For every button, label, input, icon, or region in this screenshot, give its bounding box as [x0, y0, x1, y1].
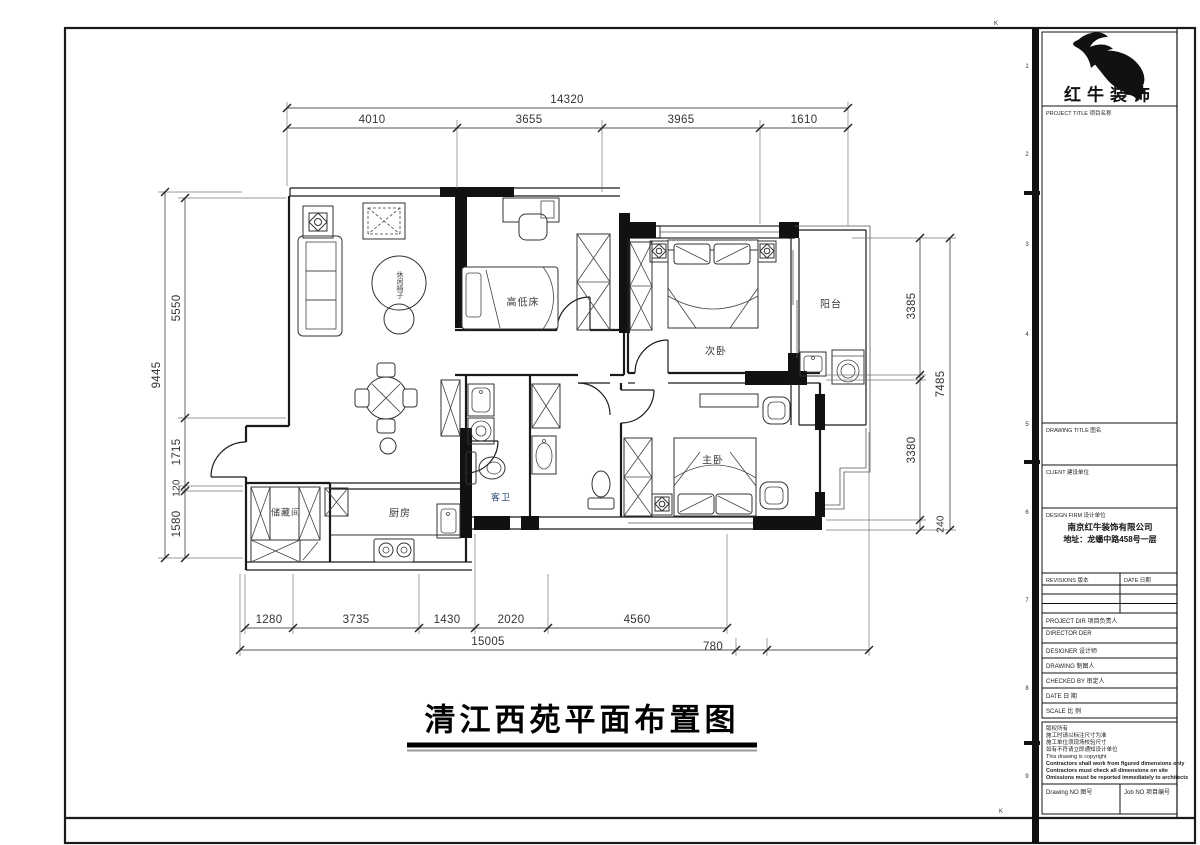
- tb-drawing-by-caption: DRAWING 制图人: [1046, 661, 1094, 670]
- zone-number: 8: [1025, 686, 1028, 692]
- room-label-kids-room: 高低床: [507, 294, 540, 309]
- tb-date-caption: DATE 日 期: [1046, 691, 1077, 700]
- zone-number: 4: [1025, 332, 1028, 338]
- tb-design-firm-name: 南京红牛装饰有限公司: [1067, 521, 1152, 533]
- dimension-ticks: [161, 104, 954, 654]
- room-label-kitchen: 厨房: [389, 505, 411, 520]
- dim-top-seg4: 1610: [791, 114, 818, 126]
- room-label-guest-bath: 客卫: [491, 491, 511, 504]
- zone-number: 9: [1025, 774, 1028, 780]
- tb-date-col-caption: DATE 日期: [1124, 576, 1151, 584]
- dim-top-seg3: 3965: [668, 114, 695, 126]
- tb-designer-caption: DESIGNER 设计师: [1046, 646, 1097, 655]
- dim-left-seg2: 1715: [171, 439, 183, 466]
- tb-drawing-title-caption: DRAWING TITLE 图名: [1046, 426, 1101, 434]
- dim-right-seg1: 3385: [906, 293, 918, 320]
- dim-bottom-seg1: 1280: [256, 614, 283, 626]
- tb-copyright-cn-3: 施工单位须现场校验尺寸: [1046, 740, 1107, 747]
- zone-number: 6: [1025, 510, 1028, 516]
- dim-right-seg2: 3380: [906, 437, 918, 464]
- dim-top-overall: 14320: [550, 94, 583, 106]
- tb-checked-by-caption: CHECKED BY 审定人: [1046, 676, 1105, 685]
- brand-name: 红牛装饰: [1064, 81, 1156, 106]
- zone-mark-top: K: [994, 21, 998, 27]
- zone-number: 5: [1025, 422, 1028, 428]
- tb-copyright-en-1: This drawing is copyright: [1046, 754, 1107, 761]
- tb-design-firm-address: 地址：龙蟠中路458号一层: [1060, 535, 1160, 545]
- zone-number: 2: [1025, 152, 1028, 158]
- tb-drawing-no-caption: Drawing NO 图号: [1046, 787, 1092, 796]
- room-label-storage: 储藏间: [271, 506, 301, 519]
- tb-revisions-caption: REVISIONS 版本: [1046, 576, 1088, 584]
- dim-bottom-extra: 780: [703, 641, 723, 653]
- tb-copyright-cn-1: 版权所有: [1046, 726, 1068, 733]
- door-swings: [211, 297, 668, 477]
- furniture-label-leisure-chair: 休闲椅子: [394, 271, 404, 299]
- tb-copyright-en-2: Contractors shall work from figured dime…: [1046, 761, 1184, 768]
- dim-left-seg3: 120: [172, 479, 183, 497]
- dim-right-seg3: 240: [936, 515, 947, 533]
- dim-bottom-seg5: 4560: [624, 614, 651, 626]
- zone-number: 3: [1025, 242, 1028, 248]
- tb-director-caption: DIRECTOR DER: [1046, 631, 1092, 637]
- dim-top-seg1: 4010: [359, 114, 386, 126]
- tb-copyright-en-3: Contractors must check all dimensions on…: [1046, 768, 1168, 775]
- tb-copyright-cn-2: 施工时请以标注尺寸为准: [1046, 733, 1107, 740]
- dim-right-overall: 7485: [935, 371, 947, 398]
- dim-left-seg4: 1580: [171, 511, 183, 538]
- dim-bottom-seg2: 3735: [343, 614, 370, 626]
- tb-scale-caption: SCALE 比 例: [1046, 706, 1081, 715]
- room-label-second-bedroom: 次卧: [705, 343, 727, 358]
- dim-left-overall: 9445: [151, 362, 163, 389]
- dim-top-seg2: 3655: [516, 114, 543, 126]
- dimension-lines: [158, 102, 956, 656]
- dim-bottom-overall: 15005: [471, 636, 504, 648]
- tb-project-title-caption: PROJECT TITLE 项目名称: [1046, 109, 1112, 117]
- tb-design-firm-caption: DESIGN FIRM 设计单位: [1046, 511, 1106, 519]
- tb-copyright-en-4: Omissions must be reported immediately t…: [1046, 775, 1188, 782]
- zone-mark-bottom: K: [999, 809, 1003, 815]
- drawing-sheet: 14320 4010 3655 3965 1610 9445 5550 1715…: [0, 0, 1200, 845]
- drawing-title: 清江西苑平面布置图: [425, 695, 740, 740]
- tb-job-no-caption: Job NO 项目编号: [1124, 787, 1170, 796]
- room-label-balcony: 阳台: [820, 296, 842, 311]
- tb-copyright-cn-4: 如有不符请立即通知设计单位: [1046, 747, 1118, 754]
- room-label-master-bedroom: 主卧: [702, 452, 724, 467]
- zone-number: 7: [1025, 598, 1028, 604]
- tb-client-caption: CLIENT 建设单位: [1046, 468, 1089, 476]
- dim-bottom-seg3: 1430: [434, 614, 461, 626]
- dim-bottom-seg4: 2020: [498, 614, 525, 626]
- title-underline: [407, 745, 757, 751]
- dim-left-seg1: 5550: [171, 295, 183, 322]
- zone-number: 1: [1025, 64, 1028, 70]
- tb-project-dir-caption: PROJECT DIR 项目负责人: [1046, 616, 1118, 625]
